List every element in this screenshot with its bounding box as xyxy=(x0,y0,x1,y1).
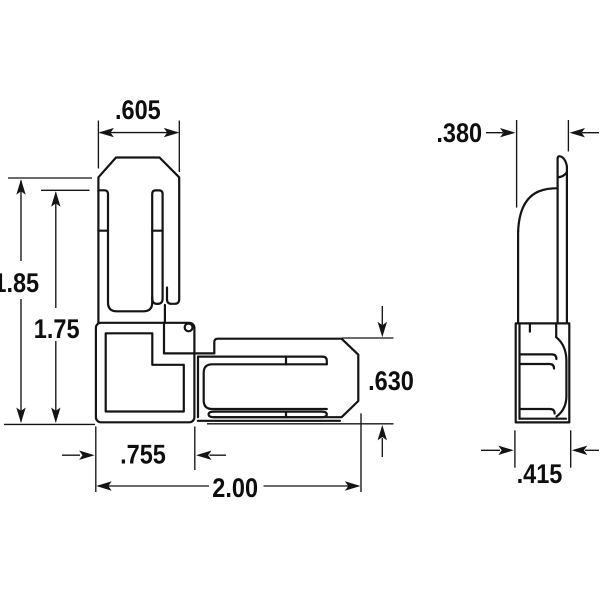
svg-text:2.00: 2.00 xyxy=(212,473,258,503)
svg-text:1.85: 1.85 xyxy=(0,268,39,298)
svg-text:.630: .630 xyxy=(368,366,414,396)
svg-text:.755: .755 xyxy=(120,440,166,470)
svg-text:.605: .605 xyxy=(115,95,161,125)
svg-text:1.75: 1.75 xyxy=(34,314,80,344)
svg-text:.415: .415 xyxy=(517,459,563,489)
svg-text:.380: .380 xyxy=(436,118,482,148)
